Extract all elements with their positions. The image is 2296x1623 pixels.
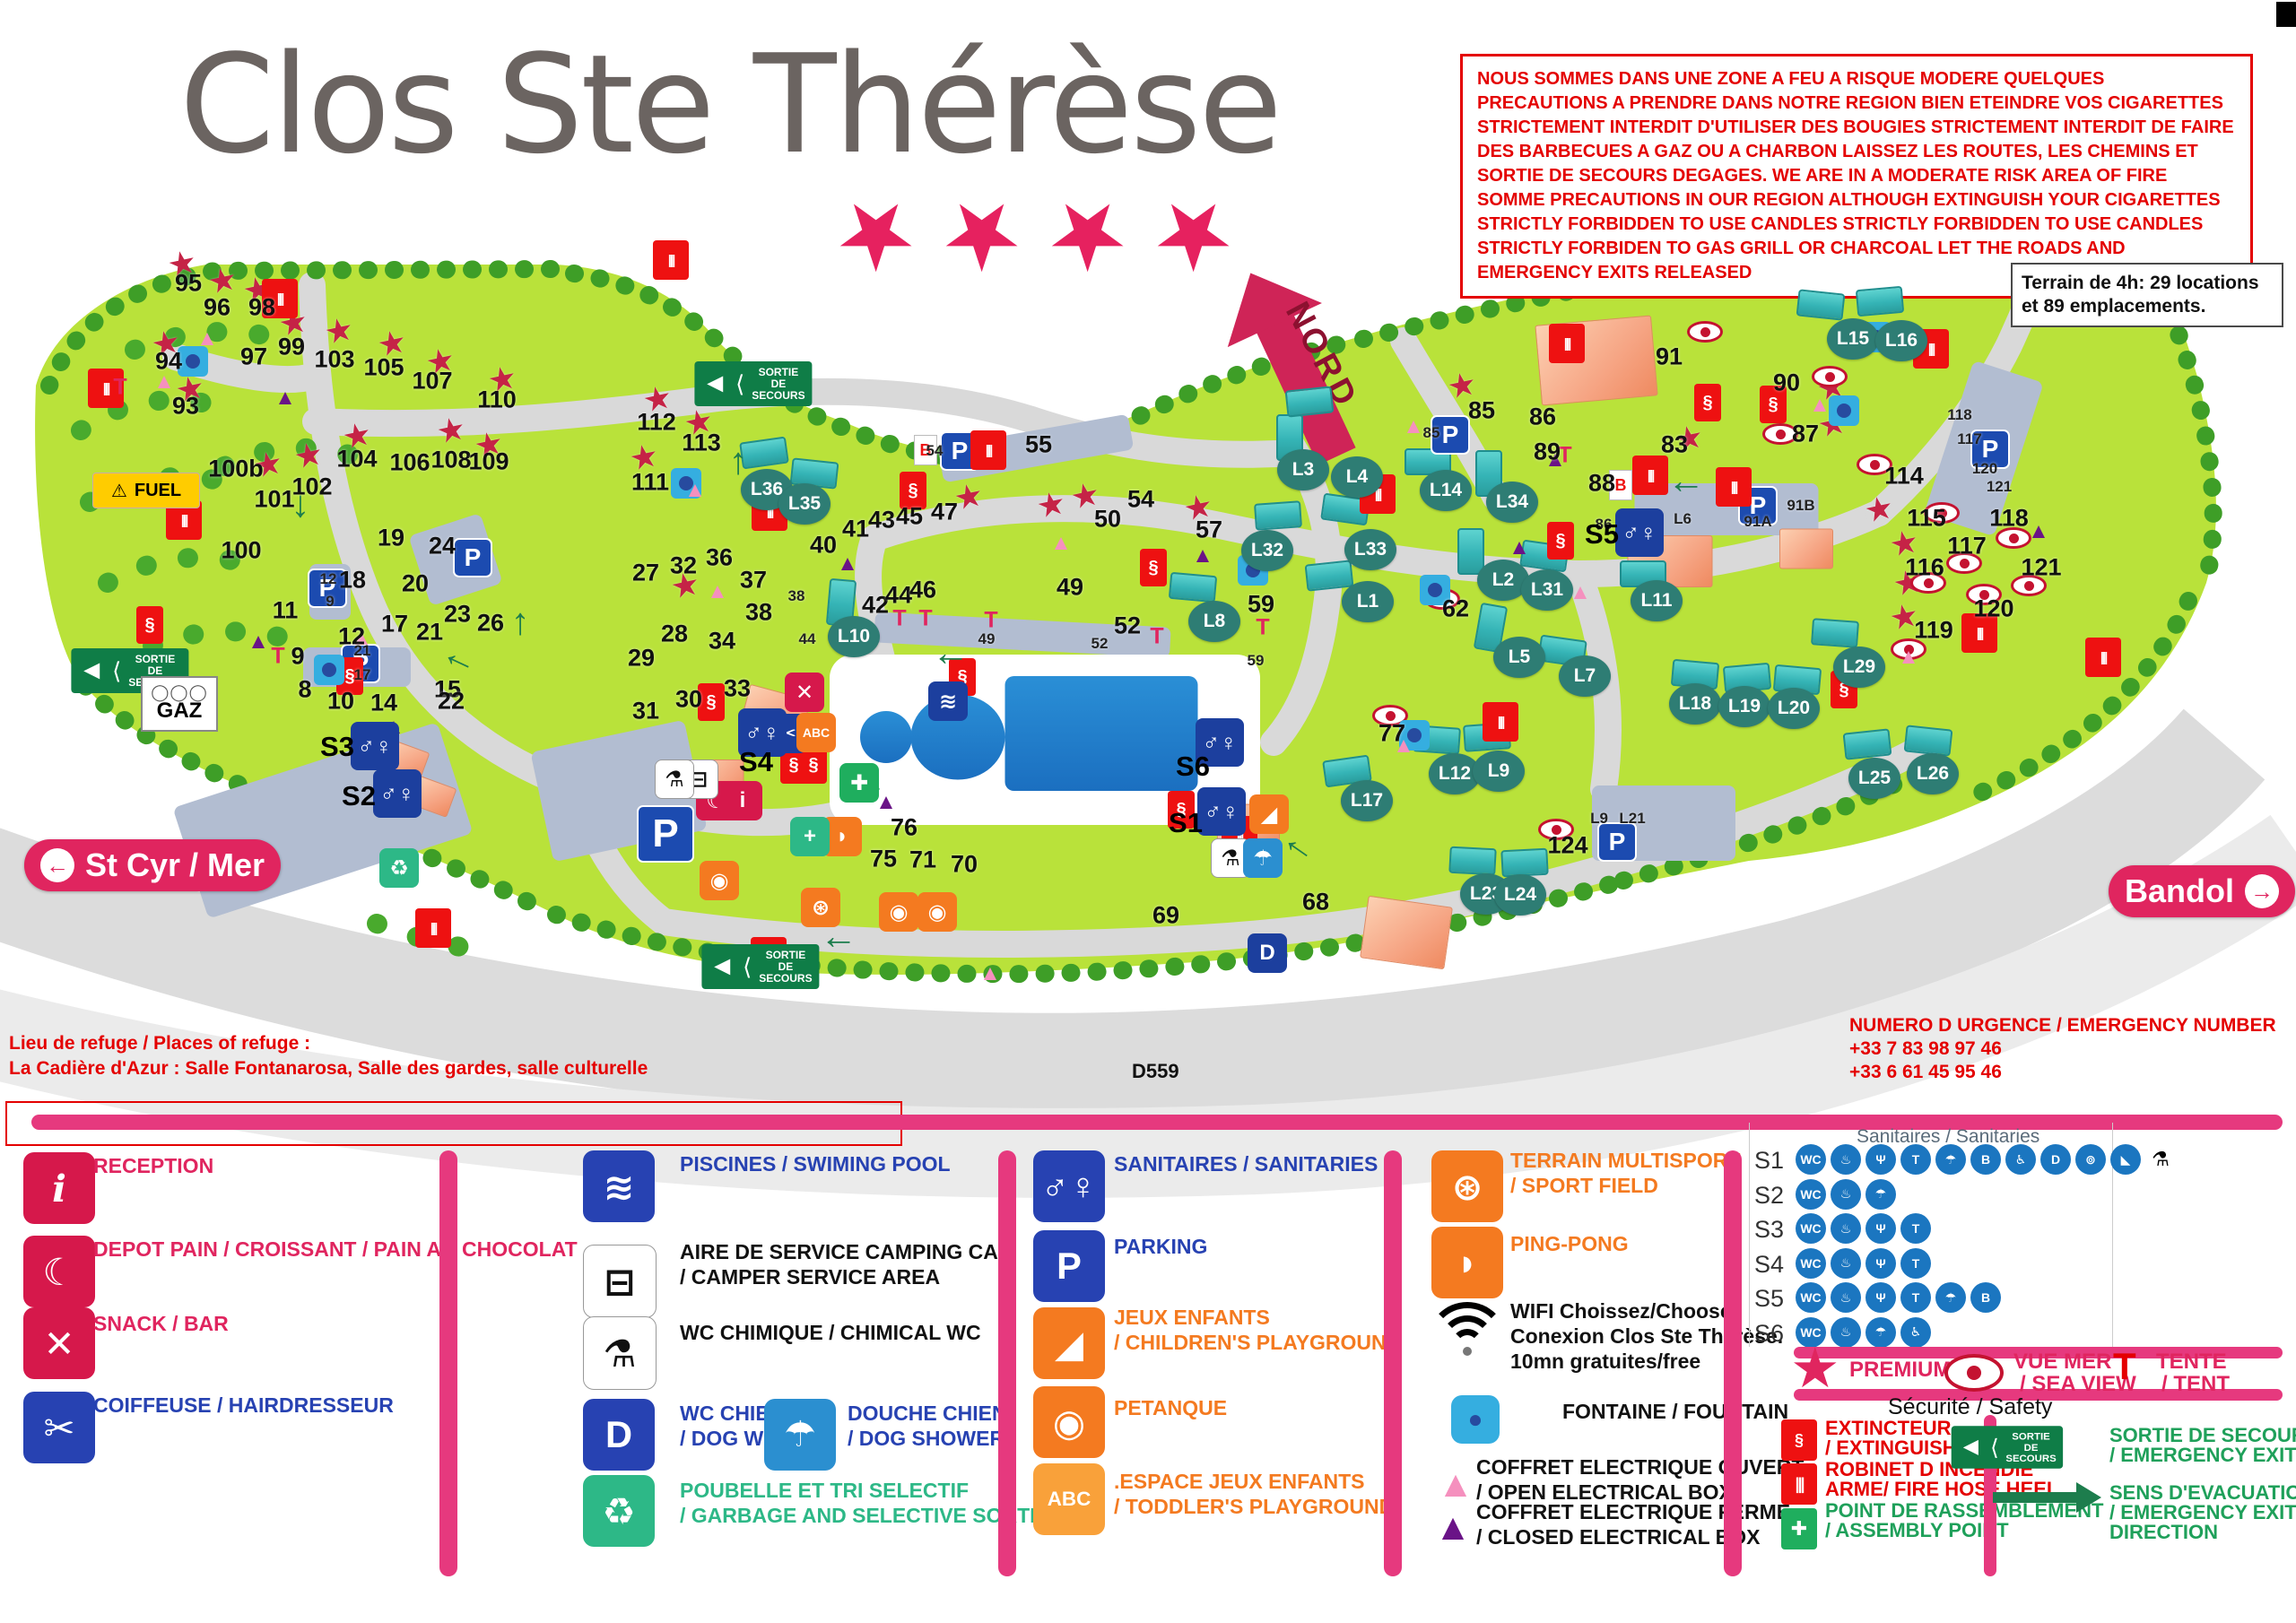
facility-shower-icon: ☂ [1865,1179,1896,1210]
plot-number: 55 [1025,431,1052,459]
plot-number: 99 [278,334,305,361]
facility-iron-icon: ◣ [2110,1144,2141,1175]
legend-coffret-ferme-icon: ▲ [1432,1506,1474,1548]
plot-number: 86 [1529,404,1556,431]
emergency-exit-sign: ◄⟨SORTIEDESECOURS [701,944,819,989]
plot-number: 40 [810,532,837,560]
plot-number: 46 [909,577,936,604]
plot-number: 23 [444,601,471,629]
stall-number: 121 [1987,478,2012,496]
legend-snack-bar-icon: ✕ [23,1307,95,1379]
sanitaire-row-label: S1 [1754,1147,1784,1175]
sanitaire-block-icon: ♂♀ [351,722,399,770]
sanitaire-row-label: S4 [1754,1251,1784,1279]
sanitaire-block-icon: ♂♀ [1615,508,1664,557]
direction-pill-bandol: Bandol→ [2109,865,2295,917]
emergency-phone2: +33 6 61 45 95 46 [1849,1062,2002,1083]
tent-spot-icon: T [918,606,932,632]
rassemblement-line2: / ASSEMBLY POINT [1825,1519,2009,1542]
closed-electrical-box-icon: ▲ [1509,535,1530,560]
stall-number: 91B [1787,497,1814,515]
premium-star-icon: ★ [1790,1347,1840,1392]
sanitaire-row-label: S5 [1754,1285,1784,1313]
plot-number: 18 [339,567,366,595]
plot-number: 26 [477,610,504,638]
evacuation-arrow-icon: → [932,644,970,687]
fuel-sign: ⚠FUEL [92,473,200,508]
petanque-icon: ◉ [918,892,957,932]
plot-number: 100 [221,537,261,565]
facility-shower-icon: ☂ [1865,1317,1896,1348]
fire-hose-icon: ||| [1549,324,1585,363]
legend-divider [439,1150,457,1576]
extinguisher-icon: § [1781,1419,1817,1461]
location-marker: L32 [1241,530,1293,571]
refuge-line1: Lieu de refuge / Places of refuge : [9,1033,310,1055]
legend-snack-bar-label: SNACK / BAR [93,1311,229,1336]
mobile-home [1500,848,1548,878]
plot-number: 76 [891,814,918,842]
emergency-exit-sign: ◄⟨SORTIEDESECOURS [694,361,812,406]
fountain-icon [1829,395,1859,426]
road-label: D559 [1132,1060,1179,1083]
legend-swimming-pool-label: PISCINES / SWIMING POOL [680,1151,951,1176]
building [1779,529,1833,569]
facility-handicap-icon: ♿ [2005,1144,2036,1175]
stall-number: L21 [1619,810,1645,828]
stall-number: 12 [320,570,337,588]
plot-number: 49 [1057,574,1083,602]
volleyball-icon: ⊛ [801,888,840,927]
stall-number: L9 [1590,810,1608,828]
legend-parking-icon: P [1033,1230,1105,1302]
location-marker: L10 [828,616,880,657]
sanitaire-row-label: S3 [1754,1216,1784,1244]
legend-coffret-ouvert-icon: ▲ [1435,1463,1476,1505]
mobile-home [1796,289,1846,320]
facility-dish-icon: Ψ [1865,1213,1896,1244]
stall-number: 52 [1091,635,1109,653]
plot-number: 114 [1884,463,1924,490]
legend-bakery-icon: ☾ [23,1236,95,1307]
legend-ping-pong-label: PING-PONG [1510,1231,1629,1256]
plot-number: 88 [1588,470,1615,498]
stall-number: 118 [1947,406,1971,424]
legend-dog-shower-icon: ☂ [764,1399,836,1471]
mobile-home [1448,846,1496,876]
plot-number: 102 [291,473,332,501]
location-marker: L16 [1875,320,1927,361]
facility-shirt-icon: T [1900,1282,1931,1313]
location-marker: L15 [1827,318,1879,360]
location-marker: L4 [1331,456,1383,498]
parking-icon: P [1597,822,1637,862]
refuge-line2: La Cadière d'Azur : Salle Fontanarosa, S… [9,1058,648,1080]
location-marker: L34 [1486,482,1538,523]
plot-number: 85 [1468,397,1495,425]
plot-number: 10 [327,688,354,716]
location-marker: L24 [1494,874,1546,916]
open-electrical-box-icon: ▲ [684,478,706,503]
mobile-home [1169,572,1217,603]
facility-shower-icon: ☂ [1935,1144,1966,1175]
plot-number: 59 [1248,591,1274,619]
fountain-icon [314,655,344,685]
plot-number: 34 [709,628,735,655]
gaz-sign: ◯◯◯GAZ [141,676,218,732]
legend-reception-icon: i [23,1152,95,1224]
plot-number: 98 [248,294,275,322]
plot-number: 36 [706,544,733,572]
premium-star-icon: ★ [1861,488,1897,531]
plot-number: 116 [1905,554,1944,582]
legend-chemical-wc-label: WC CHIMIQUE / CHIMICAL WC [680,1320,981,1345]
tente-line2: / TENT [2161,1372,2230,1397]
legend-camper-service-label: AIRE DE SERVICE CAMPING CAR/ CAMPER SERV… [680,1239,1013,1289]
location-marker: L26 [1907,753,1959,794]
plot-number: 119 [1914,617,1953,645]
closed-electrical-box-icon: ▲ [837,551,858,577]
plot-number: 89 [1534,438,1561,466]
plot-number: 33 [724,675,751,703]
legend-hairdresser-label: COIFFEUSE / HAIRDRESSEUR [93,1393,394,1418]
plot-number: 94 [155,348,182,376]
closed-electrical-box-icon: ▲ [248,629,269,655]
stall-number: 120 [1972,460,1997,478]
plot-number: 120 [1973,595,2013,623]
stall-number: 54 [926,442,944,460]
fire-hose-icon: ||| [415,908,451,948]
legend-petanque-label: PETANQUE [1114,1395,1227,1420]
plot-number: 14 [370,690,397,717]
plot-number: 37 [740,567,767,595]
parking-icon: P [637,805,694,863]
facility-dish-icon: Ψ [1865,1248,1896,1279]
legend-petanque-icon: ◉ [1033,1386,1105,1458]
premium-star-icon: ★ [1033,483,1069,526]
stall-number: 44 [799,630,816,648]
wifi-icon [1431,1302,1503,1359]
facility-baby-icon: B [1970,1282,2001,1313]
plot-number: 43 [868,507,895,534]
building [1360,896,1453,970]
evacuation-arrow-icon [1993,1492,2078,1503]
legend-playground-label: JEUX ENFANTS/ CHILDREN'S PLAYGROUND [1114,1305,1401,1355]
facility-sink-icon: ♨ [1831,1144,1861,1175]
sea-view-icon [1812,366,1848,387]
open-electrical-box-icon: ▲ [707,579,728,604]
plot-number: 96 [204,294,230,322]
legend-hairdresser-icon: ✂ [23,1392,95,1463]
plot-number: 111 [631,469,669,497]
plot-number: 70 [951,851,978,879]
extinguisher-icon: § [136,606,163,644]
stall-number: 17 [354,666,371,684]
plot-number: 112 [637,409,676,437]
facility-wc-icon: WC [1796,1248,1826,1279]
facility-dish-icon: Ψ [1865,1144,1896,1175]
plot-number: 8 [298,676,311,704]
facility-baby-icon: B [1970,1144,2001,1175]
legend-fountain-icon: ● [1451,1395,1500,1444]
dog-wc-icon: D [1248,933,1287,973]
plot-number: 103 [314,346,354,374]
fire-hose-icon: ||| [1716,467,1752,507]
parking-icon: P [453,538,492,577]
tent-spot-icon: T [113,375,126,401]
fire-hose-icon: ||| [970,430,1006,470]
legend-reception-label: RECEPTION [93,1153,213,1178]
fire-hose-icon: ||| [653,240,689,280]
tente-line1: TENTE [2156,1350,2227,1375]
legend-garbage-icon: ♻ [583,1475,655,1547]
sanitaire-row-label: S2 [1754,1182,1784,1210]
legend-sanitaires-label: SANITAIRES / SANITARIES [1114,1151,1378,1176]
mobile-home [1856,286,1904,317]
extinguisher-icon: § [1140,549,1167,586]
pool [1005,676,1198,791]
emergency-exit-sign: ◄⟨SORTIEDESECOURS [1952,1426,2064,1469]
facility-wc-icon: WC [1796,1144,1826,1175]
mobile-home [1843,728,1892,759]
closed-electrical-box-icon: ▲ [274,386,296,411]
closed-electrical-box-icon: ▲ [1192,543,1213,568]
plot-number: 121 [2021,554,2061,582]
location-marker: L35 [778,483,831,525]
legend-multisport-icon: ⊛ [1431,1150,1503,1222]
evacuation-line3: DIRECTION [2109,1521,2218,1544]
plot-number: 62 [1442,595,1469,623]
plot-number: 91 [1656,343,1683,371]
stall-number: 21 [354,642,371,660]
emergency-title: NUMERO D URGENCE / EMERGENCY NUMBER [1849,1015,2276,1037]
plot-number: 24 [429,533,456,560]
plot-number: 57 [1196,516,1222,544]
fire-hose-icon: ||| [2085,638,2121,677]
pool-ladder-icon: ≋ [928,681,968,721]
location-marker: L9 [1473,751,1525,792]
plot-number: 21 [416,619,443,647]
open-electrical-box-icon: ▲ [1403,414,1424,439]
facility-washer-icon: ⊚ [2075,1144,2106,1175]
fire-hose-icon: ||| [1781,1463,1817,1505]
tent-spot-icon: T [892,606,906,632]
legend-sanitaires-icon: ♂♀ [1033,1150,1105,1222]
legend-playground-icon: ◢ [1033,1307,1105,1379]
open-electrical-box-icon: ▲ [979,961,1001,986]
open-electrical-box-icon: ▲ [1050,531,1072,556]
location-marker: L31 [1521,569,1573,611]
location-marker: L29 [1833,647,1885,688]
pool [860,711,912,763]
location-marker: L8 [1188,601,1240,642]
location-marker: L1 [1342,581,1394,622]
sea-view-icon [1687,321,1723,343]
location-marker: L33 [1344,529,1396,570]
open-electrical-box-icon: ▲ [1809,393,1831,418]
sea-view-icon [1944,1354,2004,1392]
mobile-home [1285,386,1335,417]
tent-spot-icon: T [1150,624,1163,650]
stall-number: L6 [1674,510,1692,528]
plot-number: 110 [477,386,517,414]
tent-spot-icon: T [1256,615,1269,641]
facility-dogshower-icon: D [2040,1144,2071,1175]
facility-shower-icon: ☂ [1935,1282,1966,1313]
stall-number: 59 [1248,652,1265,670]
vue-mer-line1: VUE MER [2013,1350,2111,1375]
sanitaire-block-label: S6 [1176,751,1210,783]
plot-number: 117 [1947,533,1987,560]
stall-number: 38 [788,587,805,605]
legend-ping-pong-icon: ◗ [1431,1227,1503,1298]
location-marker: L18 [1669,683,1721,725]
fire-hose-icon: ||| [1483,702,1518,742]
stall-number: 91A [1744,513,1771,531]
legend-multisport-label: TERRAIN MULTISPORT/ SPORT FIELD [1510,1148,1740,1198]
legend-divider [1724,1150,1742,1576]
tent-spot-icon: T [271,644,284,670]
mobile-home [1305,560,1354,591]
plot-number: 69 [1152,902,1179,930]
legend-divider [998,1150,1016,1576]
open-electrical-box-icon: ▲ [196,326,218,352]
plot-number: 87 [1792,421,1819,448]
plot-number: 44 [885,582,912,610]
plot-number: 124 [1547,832,1587,860]
plot-number: 28 [661,621,688,648]
sanitaire-block-label: S4 [739,746,773,778]
plot-number: 115 [1907,505,1946,533]
facility-sink-icon: ♨ [1831,1248,1861,1279]
plot-number: 75 [870,846,897,873]
legend-dog-shower-label: DOUCHE CHIEN/ DOG SHOWER [848,1401,1007,1451]
extinguisher-icon: § [1547,522,1574,560]
sanitaire-row-label: S6 [1754,1320,1784,1348]
facility-sink-icon: ♨ [1831,1213,1861,1244]
dogshower-icon: ☂ [1243,838,1283,878]
sanitaire-block-label: S3 [320,731,354,763]
plot-number: 20 [402,570,429,598]
sanitaire-block-label: S5 [1585,518,1619,551]
location-marker: L5 [1493,637,1545,678]
petanque-icon: ◉ [700,861,739,900]
location-marker: L25 [1848,758,1900,799]
location-marker: L17 [1341,780,1393,821]
restaurant-icon: ✕ [785,673,824,712]
plot-number: 9 [291,643,304,671]
facility-shirt-icon: T [1900,1144,1931,1175]
closed-electrical-box-icon: ▲ [2028,519,2049,544]
facility-wc-icon: WC [1796,1282,1826,1313]
plot-number: 47 [931,499,958,526]
plot-number: 105 [363,354,404,382]
legend-bakery-label: DEPOT PAIN / CROISSANT / PAIN AU CHOCOLA… [93,1237,578,1262]
facility-shirt-icon: T [1900,1248,1931,1279]
facility-dish-icon: Ψ [1865,1282,1896,1313]
plot-number: 29 [628,645,655,673]
plot-number: 107 [412,368,452,395]
plot-number: 68 [1302,889,1329,916]
legend-divider [1384,1150,1402,1576]
info-icon: i [723,781,762,820]
legend-parking-label: PARKING [1114,1234,1207,1259]
legend-wifi-label: WIFI Choissez/ChooseConexion Clos Ste Th… [1510,1298,1783,1374]
plot-number: 32 [670,552,697,580]
location-marker: L14 [1420,470,1472,511]
evacuation-arrow-icon: → [820,927,857,970]
plot-number: 38 [745,599,772,627]
premium-label: PREMIUM [1849,1358,1951,1383]
direction-pill-st_cyr: ←St Cyr / Mer [24,839,281,891]
plot-number: 97 [240,343,267,371]
legend-camper-service-icon: ⊟ [583,1245,657,1318]
stall-number: 85 [1423,424,1440,442]
premium-star-icon: ★ [291,434,326,477]
stall-number: 9 [326,593,334,611]
facility-handicap-icon: ♿ [1900,1317,1931,1348]
assembly-icon: ✚ [839,763,879,803]
facility-sink-icon: ♨ [1831,1179,1861,1210]
plot-number: 118 [1989,505,2029,533]
emergency-phone1: +33 7 83 98 97 46 [1849,1038,2002,1060]
assembly-point-icon: ✚ [1781,1508,1817,1549]
plot-number: 45 [896,503,923,531]
facility-sink-icon: ♨ [1831,1282,1861,1313]
plot-number: 17 [381,611,408,638]
abc-icon: ABC [796,713,836,752]
sanitaire-block-icon: ♂♀ [1197,787,1246,836]
plot-number: 54 [1127,486,1154,514]
legend-swimming-pool-icon: ≋ [583,1150,655,1222]
plot-number: 77 [1378,720,1405,748]
plot-number: 31 [632,698,659,725]
plot-number: 95 [175,270,202,298]
plot-number: 113 [682,430,721,457]
plot-number: 106 [389,449,430,477]
open-electrical-box-icon: ▲ [1898,645,1919,670]
sanitaire-block-icon: ♂♀ [373,769,422,818]
defib-icon: + [790,817,830,856]
plot-number: 90 [1773,369,1800,397]
legend-chemical-wc-icon: ⚗ [583,1316,657,1390]
plot-number: 104 [336,446,377,473]
sanitaire-block-label: S2 [342,780,376,812]
legend-fountain-label: FONTAINE / FOUNTAIN [1562,1399,1788,1424]
plot-number: 50 [1094,506,1121,534]
plot-number: 83 [1661,431,1688,459]
plot-number: 71 [909,846,936,874]
location-marker: L7 [1559,655,1611,697]
playground-slide-icon: ◢ [1249,794,1289,834]
plot-number: 108 [430,447,471,474]
plot-number: 19 [378,525,404,552]
location-marker: L3 [1277,449,1329,490]
chemwc-icon: ⚗ [655,759,694,799]
location-marker: L11 [1631,580,1683,621]
poster: Clos Ste Thérèse ★★★★ NOUS SOMMES DANS U… [0,0,2296,1623]
plot-number: 52 [1114,612,1141,640]
sanitaire-block-label: S1 [1169,807,1203,839]
legend-coffret-ouvert-label: COFFRET ELECTRIQUE OUVERT/ OPEN ELECTRIC… [1476,1454,1804,1505]
plot-number: 41 [842,516,869,543]
facility-chem-icon: ⚗ [2145,1144,2176,1175]
evacuation-arrow-icon: → [1667,472,1705,515]
location-marker: L19 [1718,686,1770,727]
mobile-home [1904,725,1953,756]
plot-number: 27 [632,560,659,587]
mobile-home [1254,500,1302,531]
